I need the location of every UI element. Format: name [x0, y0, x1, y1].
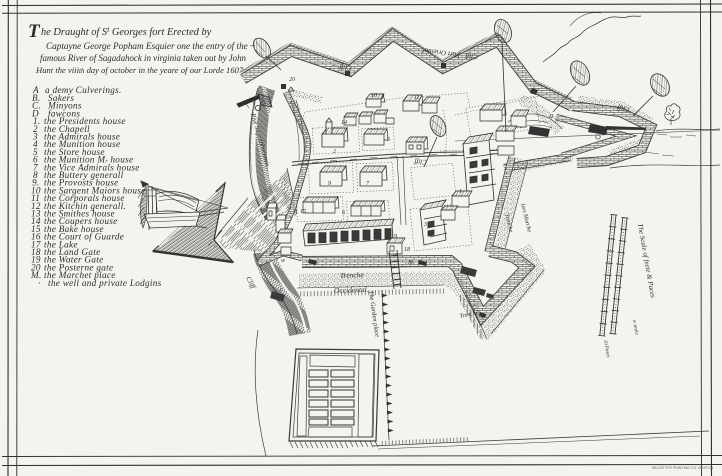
- svg-text:Trenche: Trenche: [340, 270, 365, 280]
- svg-text:M: M: [407, 260, 414, 266]
- svg-text:D: D: [548, 114, 554, 120]
- svg-text:he Draught of St Georges fort: he Draught of St Georges fort Erected by: [41, 25, 212, 38]
- svg-text:11: 11: [414, 95, 420, 101]
- svg-text:famous River of Sagadahock in: famous River of Sagadahock in virginia t…: [40, 53, 247, 63]
- svg-text:·the well and private Lodgins: ·the well and private Lodgins: [38, 278, 162, 288]
- svg-text:9: 9: [328, 181, 331, 187]
- svg-text:Hunt the viiith day of october: Hunt the viiith day of october in the ye…: [35, 65, 251, 75]
- svg-text:14: 14: [341, 119, 347, 126]
- svg-text:c: c: [280, 287, 283, 293]
- svg-text:1: 1: [459, 189, 462, 195]
- svg-text:2: 2: [333, 149, 336, 155]
- svg-text:6: 6: [342, 210, 345, 216]
- svg-text:19: 19: [391, 234, 397, 240]
- svg-text:Cliff: Cliff: [413, 157, 427, 166]
- svg-text:Aa demy Culverings.: Aa demy Culverings.: [32, 85, 122, 95]
- svg-text:Occidental.: Occidental.: [334, 285, 369, 295]
- svg-text:18: 18: [404, 247, 410, 253]
- svg-text:10: 10: [371, 93, 377, 99]
- svg-text:Captayne George Popham Esquier: Captayne George Popham Esquier one the e…: [46, 41, 255, 51]
- svg-text:5: 5: [387, 137, 390, 143]
- svg-text:3: 3: [423, 222, 427, 228]
- svg-text:20: 20: [289, 77, 295, 83]
- svg-text:15: 15: [300, 209, 306, 215]
- svg-text:T: T: [28, 21, 41, 42]
- svg-text:HELIOTYPE PRINTING CO. BOSTON: HELIOTYPE PRINTING CO. BOSTON: [652, 466, 714, 470]
- svg-text:w: w: [281, 258, 285, 264]
